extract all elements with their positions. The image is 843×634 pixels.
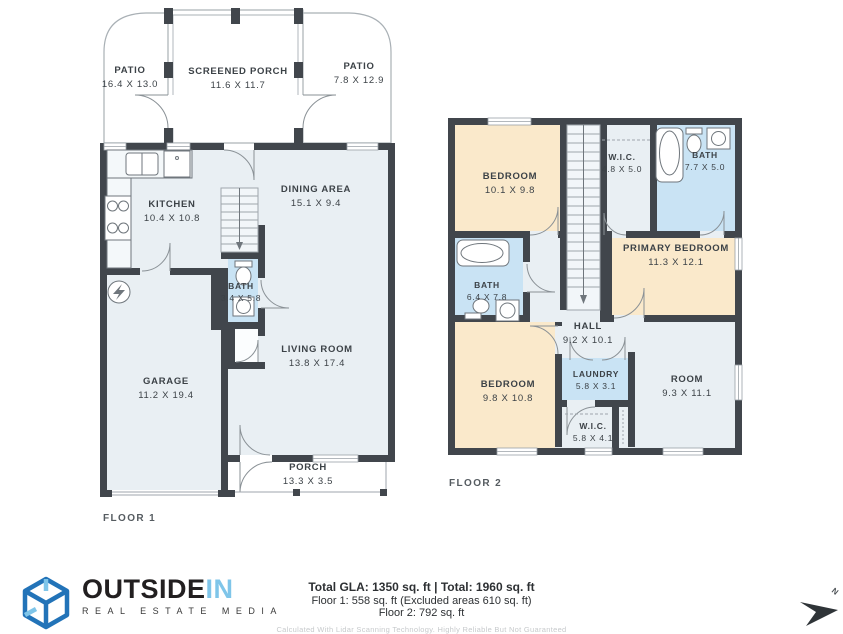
room-label-wic-bottom: W.I.C. 5.8 X 4.1 xyxy=(573,421,613,445)
room-label-porch: PORCH 13.3 X 3.5 xyxy=(283,461,333,490)
footer-summary: Total GLA: 1350 sq. ft | Total: 1960 sq.… xyxy=(0,580,843,634)
sink-top-icon xyxy=(707,128,730,149)
bathtub-top-icon xyxy=(656,128,683,182)
room-label-hall: HALL 9.2 X 10.1 xyxy=(563,320,613,349)
room-label-primary-bedroom: PRIMARY BEDROOM 11.3 X 12.1 xyxy=(623,242,729,271)
room-label-living: LIVING ROOM 13.8 X 17.4 xyxy=(281,343,353,372)
floor1-label: FLOOR 1 xyxy=(103,513,156,524)
floor2-area-line: Floor 2: 792 sq. ft xyxy=(0,607,843,619)
total-gla-line: Total GLA: 1350 sq. ft | Total: 1960 sq.… xyxy=(0,580,843,594)
room-label-laundry: LAUNDRY 5.8 X 3.1 xyxy=(573,369,619,393)
floorplan-graphics xyxy=(0,0,843,632)
room-label-bedroom-top: BEDROOM 10.1 X 9.8 xyxy=(483,170,538,199)
room-label-bath-top: BATH 7.7 X 5.0 xyxy=(685,150,725,174)
room-label-kitchen: KITCHEN 10.4 X 10.8 xyxy=(144,198,200,227)
dishwasher-icon xyxy=(164,151,190,177)
room-label-room: ROOM 9.3 X 11.1 xyxy=(662,373,712,402)
bathtub-mid-icon xyxy=(457,240,509,266)
room-label-bath-mid: BATH 6.4 X 7.8 xyxy=(467,280,507,304)
floor2-label: FLOOR 2 xyxy=(449,478,502,489)
north-label: N xyxy=(830,586,840,597)
room-label-bath-f1: BATH 3.4 X 5.8 xyxy=(221,281,261,305)
electrical-panel-icon xyxy=(108,281,130,303)
room-label-bedroom-bottom: BEDROOM 9.8 X 10.8 xyxy=(481,378,536,407)
room-label-wic-top: W.I.C. 4.8 X 5.0 xyxy=(602,152,642,176)
room-label-screened-porch: SCREENED PORCH 11.6 X 11.7 xyxy=(188,65,288,94)
stove-icon xyxy=(105,196,131,240)
room-label-garage: GARAGE 11.2 X 19.4 xyxy=(138,375,194,404)
disclaimer-text: Calculated With Lidar Scanning Technolog… xyxy=(0,625,843,634)
room-label-dining: DINING AREA 15.1 X 9.4 xyxy=(281,183,351,212)
floor1-area-line: Floor 1: 558 sq. ft (Excluded areas 610 … xyxy=(0,595,843,607)
room-label-patio-right: PATIO 7.8 X 12.9 xyxy=(334,60,384,89)
compass: N xyxy=(798,585,843,627)
room-label-patio-left: PATIO 16.4 X 13.0 xyxy=(102,64,158,93)
garage-door-icon xyxy=(112,492,218,495)
